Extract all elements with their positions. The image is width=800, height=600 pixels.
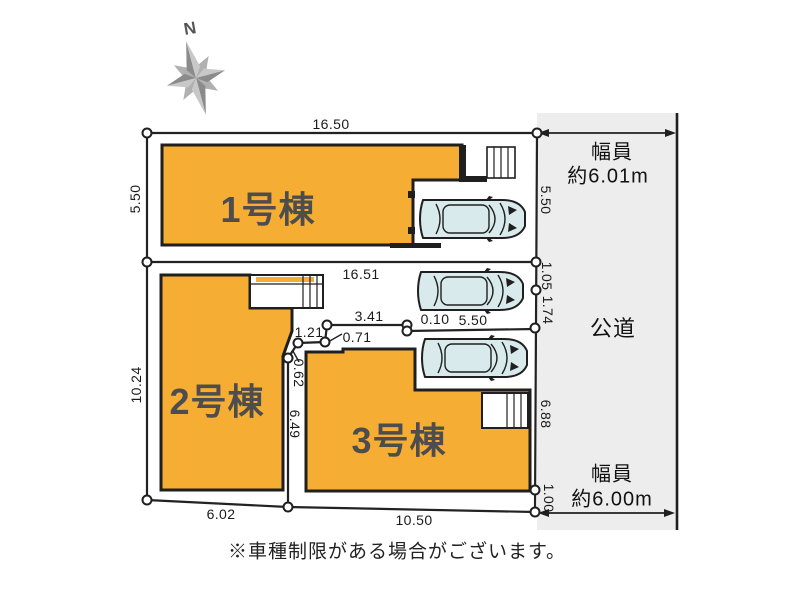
building-3-label: 3号棟 — [351, 412, 446, 464]
site-plan-drawing — [0, 0, 800, 600]
building-1-label: 1号棟 — [220, 181, 315, 233]
dim-bottom-right-width: 10.50 — [395, 512, 432, 528]
dim-left-lower-height: 10.24 — [128, 366, 144, 403]
dim-inner-seg5: 5.50 — [459, 312, 488, 328]
dim-inner-vert: 6.49 — [287, 410, 303, 439]
road-width-top-label-line2: 約6.01m — [567, 160, 649, 189]
dim-right-gap1: 1.05 — [539, 262, 555, 291]
road-width-bottom-label-line2: 約6.00m — [571, 483, 653, 512]
dim-right-lower-height: 6.88 — [538, 400, 554, 429]
dim-inner-seg4: 0.10 — [421, 311, 450, 327]
dim-top-width: 16.50 — [312, 116, 349, 132]
vehicle-restriction-note: ※車種制限がある場合がございます。 — [228, 537, 566, 564]
site-plan: N 1号棟 2号棟 3号棟 16.50 16.51 6.02 10.50 1.2… — [0, 0, 800, 600]
building-2-label: 2号棟 — [169, 373, 264, 425]
car-icon-2 — [418, 268, 523, 314]
compass-rose-icon — [157, 34, 235, 123]
dim-inner-diag: 0.62 — [291, 359, 307, 388]
car-icon-1 — [420, 196, 525, 242]
road-name-label: 公道 — [590, 311, 636, 343]
dim-right-gap3: 1.00 — [541, 484, 557, 513]
dim-right-gap2: 1.74 — [540, 296, 556, 325]
building-3-stairs-icon — [482, 393, 528, 428]
dim-mid-width: 16.51 — [342, 266, 379, 282]
building-1-stairs-icon — [487, 147, 515, 178]
building-2-stairs-icon — [250, 275, 323, 308]
dim-inner-seg1: 1.21 — [295, 324, 324, 340]
dim-inner-seg2: 0.71 — [343, 329, 372, 345]
dim-bottom-left-width: 6.02 — [207, 506, 236, 522]
dim-inner-seg3: 3.41 — [355, 308, 384, 324]
dim-right-upper-height: 5.50 — [538, 186, 554, 215]
dim-left-upper-height: 5.50 — [127, 185, 143, 214]
car-icon-3 — [422, 335, 527, 381]
